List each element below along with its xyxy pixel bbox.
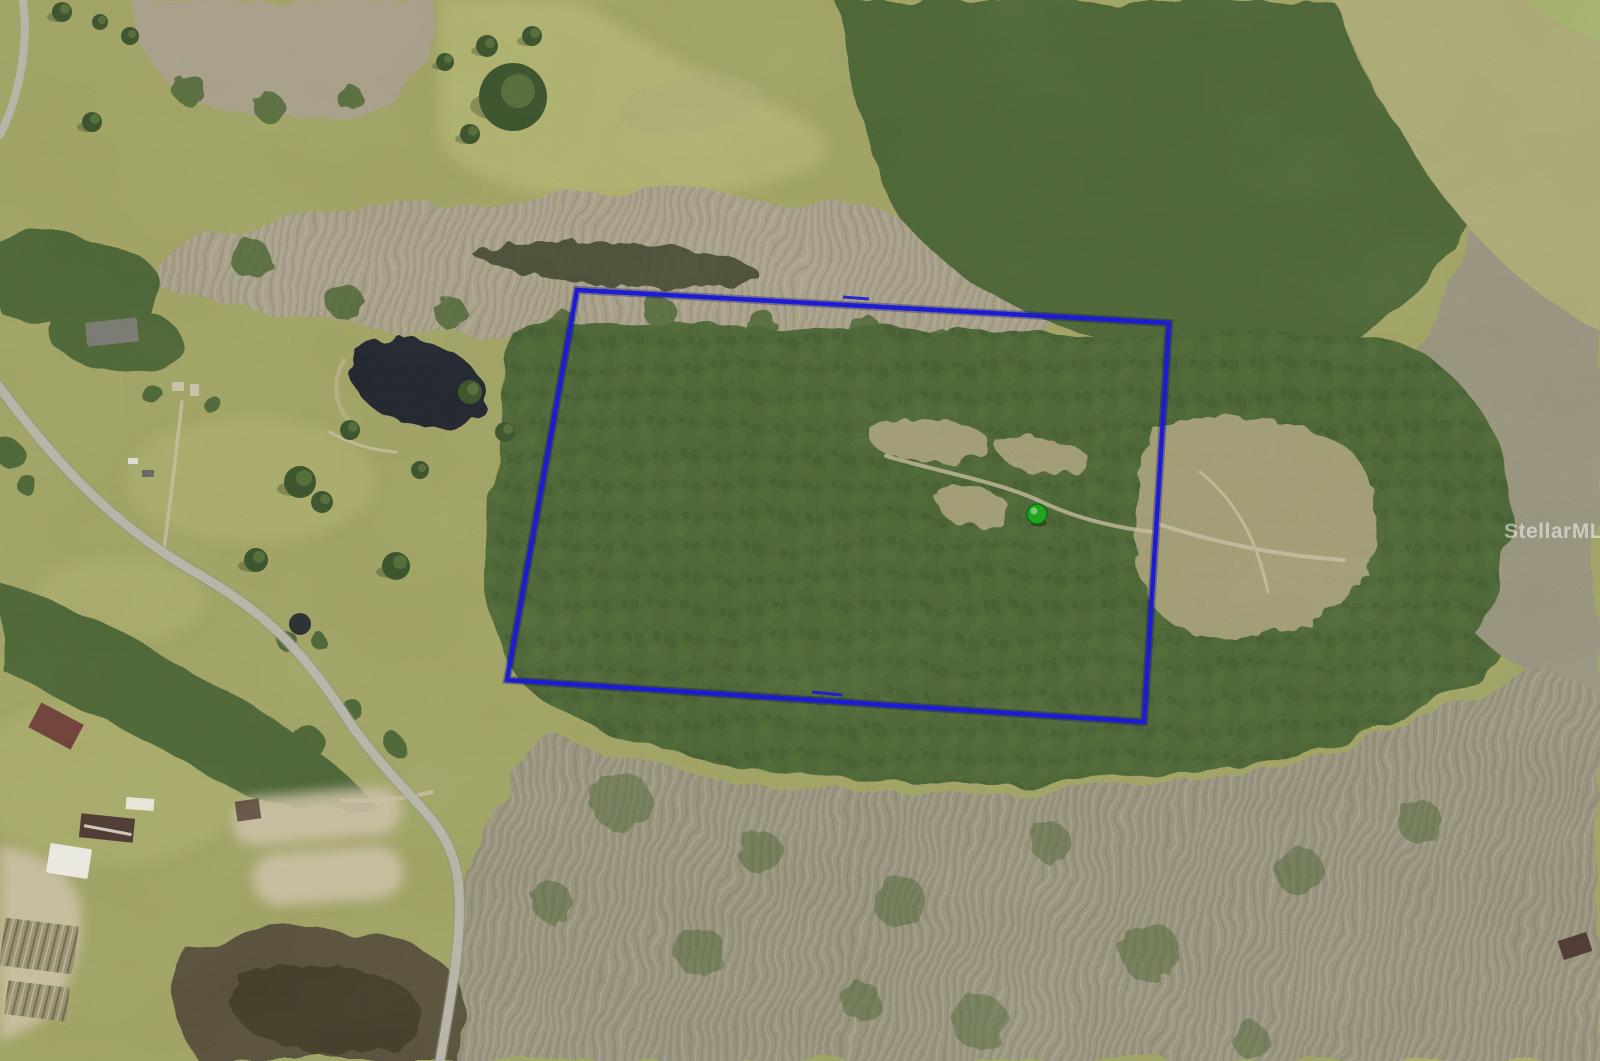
property-marker-dot xyxy=(1027,504,1047,524)
aerial-photo: StellarMLS xyxy=(0,0,1600,1061)
watermark: StellarMLS xyxy=(1504,520,1600,543)
grain-overlay xyxy=(0,0,1600,1061)
boundary-tick-top xyxy=(843,297,869,299)
